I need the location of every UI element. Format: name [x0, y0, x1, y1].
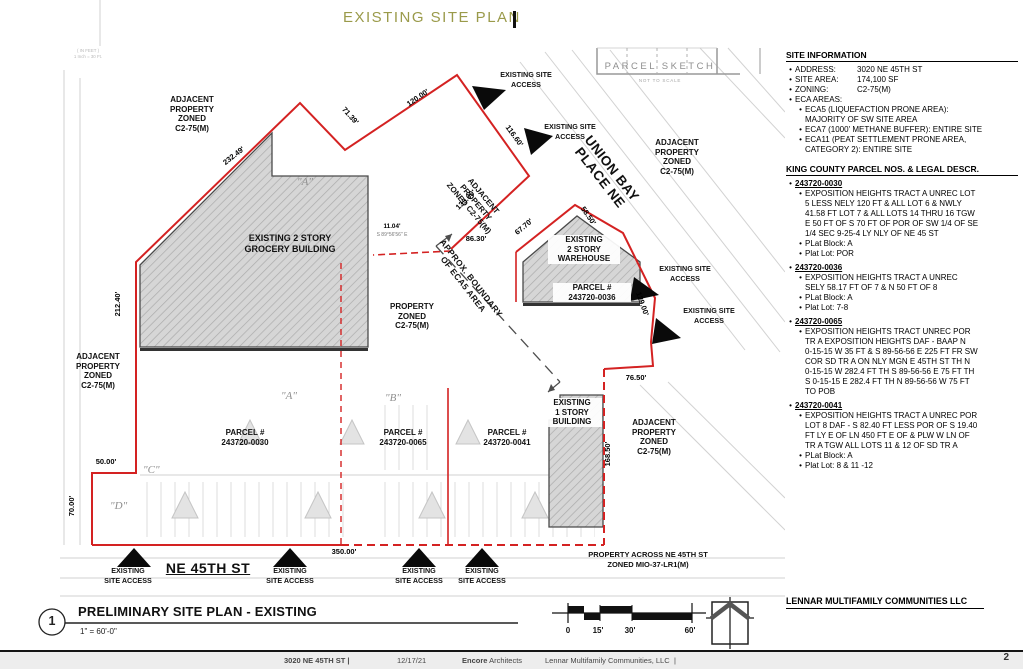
site-access-label-top2: EXISTING SITE ACCESS	[536, 122, 604, 141]
row-value: 174,100 SF	[857, 75, 898, 85]
info-panel: SITE INFORMATION •ADDRESS:3020 NE 45TH S…	[786, 50, 1018, 650]
sheet-title: EXISTING SITE PLAN	[343, 9, 521, 26]
plat-lot: Plat Lot: 8 & 11 -12	[805, 461, 873, 471]
parcel-entry-0065: •243720-0065 •EXPOSITION HEIGHTS TRACT U…	[786, 317, 1018, 397]
parcel-legal: EXPOSITION HEIGHTS TRACT UNREC POR TR A …	[805, 327, 978, 397]
survey-scale-note: ( IN FEET ) 1 Inch = 30 Ft.	[58, 48, 118, 59]
dim-inner-horizontal: 86.30'	[456, 235, 496, 243]
area-letter-b: "B"	[385, 392, 401, 404]
scalebar-tick-0: 0	[562, 626, 574, 635]
eca-areas-row: •ECA AREAS:	[786, 95, 1018, 105]
page-number: 2	[1003, 652, 1009, 663]
site-access-label-top1: EXISTING SITE ACCESS	[492, 70, 560, 89]
parcel-0065-label: PARCEL # 243720-0065	[360, 428, 446, 447]
footer-date: 12/17/21	[397, 656, 426, 665]
footer-firm-name: Encore	[462, 656, 487, 665]
adjacent-property-label-se: ADJACENT PROPERTY ZONED C2-75(M)	[622, 418, 686, 456]
eca-item: •ECA11 (PEAT SETTLEMENT PRONE AREA, CATE…	[786, 135, 1018, 155]
adjacent-property-label-nw: ADJACENT PROPERTY ZONED C2-75(M)	[160, 95, 224, 133]
parcel-entry-0041: •243720-0041 •EXPOSITION HEIGHTS TRACT A…	[786, 401, 1018, 471]
parcel-id: 243720-0036	[795, 263, 842, 273]
site-access-label-bottom2: EXISTING SITE ACCESS	[257, 566, 323, 585]
site-info-row: •ADDRESS:3020 NE 45TH ST	[786, 65, 1018, 75]
dim-south-edge: 350.00'	[322, 548, 366, 556]
parcel-entry-0036: •243720-0036 •EXPOSITION HEIGHTS TRACT A…	[786, 263, 1018, 313]
property-across-label: PROPERTY ACROSS NE 45TH ST ZONED MIO-37-…	[566, 550, 730, 569]
parcel-sketch-label: PARCEL SKETCH	[600, 62, 720, 72]
scalebar-tick-60: 60'	[680, 626, 700, 635]
detail-number: 1	[39, 614, 65, 628]
adjacent-property-label-w: ADJACENT PROPERTY ZONED C2-75(M)	[66, 352, 130, 390]
one-story-building-label: EXISTING 1 STORY BUILDING	[542, 398, 602, 427]
site-access-label-bottom1: EXISTING SITE ACCESS	[95, 566, 161, 585]
graphic-scale-bar	[552, 603, 706, 623]
plat-block: PLat Block: A	[805, 293, 853, 303]
property-zoned-label: PROPERTY ZONED C2-75(M)	[380, 302, 444, 331]
parcel-id: 243720-0065	[795, 317, 842, 327]
parcel-legal: EXPOSITION HEIGHTS TRACT A UNREC LOT 5 L…	[805, 189, 978, 239]
row-label: SITE AREA:	[795, 75, 857, 85]
site-access-label-right1: EXISTING SITE ACCESS	[650, 264, 720, 283]
site-access-label-bottom3: EXISTING SITE ACCESS	[386, 566, 452, 585]
area-letter-a: "A"	[281, 390, 297, 402]
plat-block: PLat Block: A	[805, 451, 853, 461]
warehouse-parcel-label: PARCEL # 243720-0036	[553, 283, 631, 302]
sheet: EXISTING SITE PLAN ( IN FEET ) 1 Inch = …	[0, 0, 1023, 669]
area-letter-d: "D"	[110, 500, 127, 512]
title-separator-bar	[513, 11, 516, 28]
dim-west-lower: 70.00'	[68, 484, 76, 528]
scalebar-tick-30: 30'	[620, 626, 640, 635]
area-letter-c: "C"	[143, 464, 160, 476]
eca-item: •ECA5 (LIQUEFACTION PRONE AREA): MAJORIT…	[786, 105, 1018, 125]
plat-block: PLat Block: A	[805, 239, 853, 249]
parcel-entry-0030: •243720-0030 •EXPOSITION HEIGHTS TRACT A…	[786, 179, 1018, 259]
owner-name: LENNAR MULTIFAMILY COMMUNITIES LLC	[786, 596, 984, 609]
drawing-title: PRELIMINARY SITE PLAN - EXISTING	[78, 604, 317, 619]
adjacent-property-label-ne: ADJACENT PROPERTY ZONED C2-75(M)	[645, 138, 709, 176]
site-info-heading: SITE INFORMATION	[786, 50, 1018, 62]
row-value: 3020 NE 45TH ST	[857, 65, 922, 75]
scalebar-tick-15: 15'	[588, 626, 608, 635]
row-label: ZONING:	[795, 85, 857, 95]
dim-west-step: 50.00'	[86, 458, 126, 466]
parcel-legal: EXPOSITION HEIGHTS TRACT A UNREC SELY 58…	[805, 273, 958, 293]
parcel-0030-label: PARCEL # 243720-0030	[202, 428, 288, 447]
area-letter-a-upper: "A"	[297, 176, 313, 188]
parcel-legal: EXPOSITION HEIGHTS TRACT A UNREC POR LOT…	[805, 411, 977, 451]
plat-lot: Plat Lot: POR	[805, 249, 854, 259]
dim-jog-bearing: S 89°56'56" E	[366, 231, 418, 239]
plat-lot: Plat Lot: 7-8	[805, 303, 848, 313]
dim-jog: 11.04'	[372, 223, 412, 231]
grocery-building-label: EXISTING 2 STORY GROCERY BUILDING	[228, 233, 352, 255]
eca-item: •ECA7 (1000' METHANE BUFFER): ENTIRE SIT…	[786, 125, 1018, 135]
site-info-row: •SITE AREA:174,100 SF	[786, 75, 1018, 85]
north-symbol-icon	[706, 597, 754, 649]
dim-east-notch: 76.50'	[616, 374, 656, 382]
row-label: ADDRESS:	[795, 65, 857, 75]
warehouse-building-label: EXISTING 2 STORY WAREHOUSE	[548, 235, 620, 264]
parcels-heading: KING COUNTY PARCEL NOS. & LEGAL DESCR.	[786, 164, 1018, 176]
drawing-scale: 1" = 60'-0"	[80, 627, 117, 636]
parcel-id: 243720-0030	[795, 179, 842, 189]
site-access-arrow-icon	[472, 86, 506, 110]
site-access-label-right2: EXISTING SITE ACCESS	[674, 306, 744, 325]
site-info-row: •ZONING:C2-75(M)	[786, 85, 1018, 95]
not-to-scale-label: NOT TO SCALE	[628, 76, 692, 86]
street-label-ne-45th: NE 45TH ST	[158, 560, 258, 576]
parcel-0041-label: PARCEL # 243720-0041	[464, 428, 550, 447]
footer-client: Lennar Multifamily Communities, LLC	[545, 656, 670, 665]
row-value: C2-75(M)	[857, 85, 891, 95]
footer-address: 3020 NE 45TH ST |	[284, 656, 349, 665]
parcel-id: 243720-0041	[795, 401, 842, 411]
footer-firm: Encore Architects	[462, 656, 522, 665]
footer-separator: |	[674, 656, 676, 665]
dim-east-side: 168.50'	[604, 432, 612, 476]
dim-west-side: 212.40'	[114, 282, 122, 326]
footer-firm-suffix: Architects	[487, 656, 522, 665]
site-access-label-bottom4: EXISTING SITE ACCESS	[449, 566, 515, 585]
